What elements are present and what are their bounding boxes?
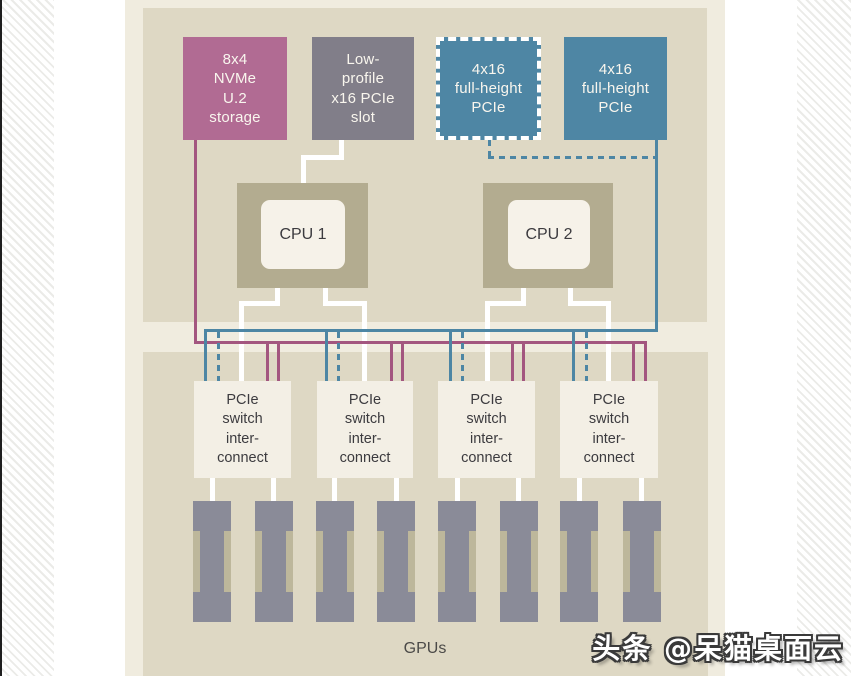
pcie-full-height-dashed-label: 4x16 full-height PCIe: [455, 60, 522, 117]
nvme-lane-drop: [522, 341, 525, 383]
switch-to-gpu-link: [639, 478, 644, 502]
pcie-lane-trunk: [655, 140, 658, 332]
gpu-slot-edge: [438, 531, 445, 592]
cpu1-to-switch-link: [239, 301, 280, 306]
gpu-card-3: [316, 501, 354, 622]
gpu-slot-edge: [347, 531, 354, 592]
pcie-switch-2: PCIe switch inter- connect: [317, 381, 413, 478]
gpu-slot-edge: [408, 531, 415, 592]
pcie-switch-label: PCIe switch inter- connect: [461, 391, 512, 468]
pcie-switch-1: PCIe switch inter- connect: [194, 381, 291, 478]
gpu-slot-edge: [500, 531, 507, 592]
nvme-lane-drop: [266, 341, 269, 383]
gpu-slot-edge: [377, 531, 384, 592]
switch-to-gpu-link: [577, 478, 582, 502]
nvme-storage-box: 8x4 NVMe U.2 storage: [183, 37, 287, 140]
pcie-switch-3: PCIe switch inter- connect: [438, 381, 535, 478]
gpu-slot-edge: [255, 531, 262, 592]
nvme-lane-drop: [511, 341, 514, 383]
pcie-lane-drop: [572, 329, 575, 383]
switch-to-gpu-link: [455, 478, 460, 502]
pcie-switch-label: PCIe switch inter- connect: [340, 391, 391, 468]
nvme-lane-drop: [644, 341, 647, 383]
switch-to-gpu-link: [394, 478, 399, 502]
server-architecture-diagram: 8x4 NVMe U.2 storage Low- profile x16 PC…: [0, 0, 851, 676]
cpu-2: CPU 2: [508, 200, 590, 269]
pcie-dashed-lane-drop: [461, 332, 464, 383]
gpu-card-5: [438, 501, 476, 622]
pcie-dashed-lane-drop: [337, 332, 340, 383]
pcie-dashed-lane-trunk: [488, 156, 658, 159]
gpus-label: GPUs: [375, 640, 475, 658]
nvme-storage-label: 8x4 NVMe U.2 storage: [209, 50, 260, 126]
cpu-1-socket: CPU 1: [237, 183, 368, 288]
switch-to-gpu-link: [332, 478, 337, 502]
pcie-switch-4: PCIe switch inter- connect: [560, 381, 658, 478]
switch-to-gpu-link: [210, 478, 215, 502]
gpu-card-2: [255, 501, 293, 622]
gpu-slot-edge: [316, 531, 323, 592]
switch-to-gpu-link: [516, 478, 521, 502]
cpu2-to-switch-link: [568, 301, 611, 306]
gpu-card-6: [500, 501, 538, 622]
slot-to-cpu1-link: [301, 155, 306, 185]
pcie-lane-bus: [204, 329, 658, 332]
pcie-full-height-solid-box: 4x16 full-height PCIe: [564, 37, 667, 140]
cpu1-to-switch-link: [323, 301, 367, 306]
pcie-lane-drop: [204, 329, 207, 383]
gpu-slot-edge: [286, 531, 293, 592]
pcie-full-height-dashed-box: 4x16 full-height PCIe: [436, 37, 541, 140]
pcie-lane-drop: [449, 329, 452, 383]
gpu-slot-edge: [623, 531, 630, 592]
gpu-slot-edge: [469, 531, 476, 592]
gpu-slot-edge: [224, 531, 231, 592]
nvme-lane-drop: [390, 341, 393, 383]
watermark: 头条 @呆猫桌面云: [592, 627, 844, 667]
nvme-lane-drop: [401, 341, 404, 383]
pcie-full-height-solid-label: 4x16 full-height PCIe: [582, 60, 649, 117]
right-hatch-margin: [797, 0, 851, 676]
gpu-slot-edge: [654, 531, 661, 592]
nvme-lane-trunk: [194, 140, 197, 344]
gpu-slot-edge: [193, 531, 200, 592]
gpu-card-7: [560, 501, 598, 622]
low-profile-slot-label: Low- profile x16 PCIe slot: [331, 50, 394, 126]
pcie-switch-label: PCIe switch inter- connect: [217, 391, 268, 468]
pcie-switch-label: PCIe switch inter- connect: [584, 391, 635, 468]
nvme-lane-drop: [277, 341, 280, 383]
slot-to-cpu1-link: [301, 155, 344, 160]
gpu-slot-edge: [591, 531, 598, 592]
nvme-lane-drop: [632, 341, 635, 383]
gpu-slot-edge: [560, 531, 567, 592]
cpu-2-socket: CPU 2: [483, 183, 613, 288]
left-hatch-margin: [2, 0, 54, 676]
nvme-lane-bus: [194, 341, 647, 344]
cpu-1: CPU 1: [261, 200, 345, 269]
pcie-dashed-lane-drop: [585, 332, 588, 383]
pcie-lane-drop: [325, 329, 328, 383]
cpu2-to-switch-link: [485, 301, 526, 306]
switch-to-gpu-link: [271, 478, 276, 502]
gpu-card-4: [377, 501, 415, 622]
pcie-dashed-lane-drop: [217, 332, 220, 383]
low-profile-slot-box: Low- profile x16 PCIe slot: [312, 37, 414, 140]
gpu-card-1: [193, 501, 231, 622]
gpu-card-8: [623, 501, 661, 622]
gpu-slot-edge: [531, 531, 538, 592]
